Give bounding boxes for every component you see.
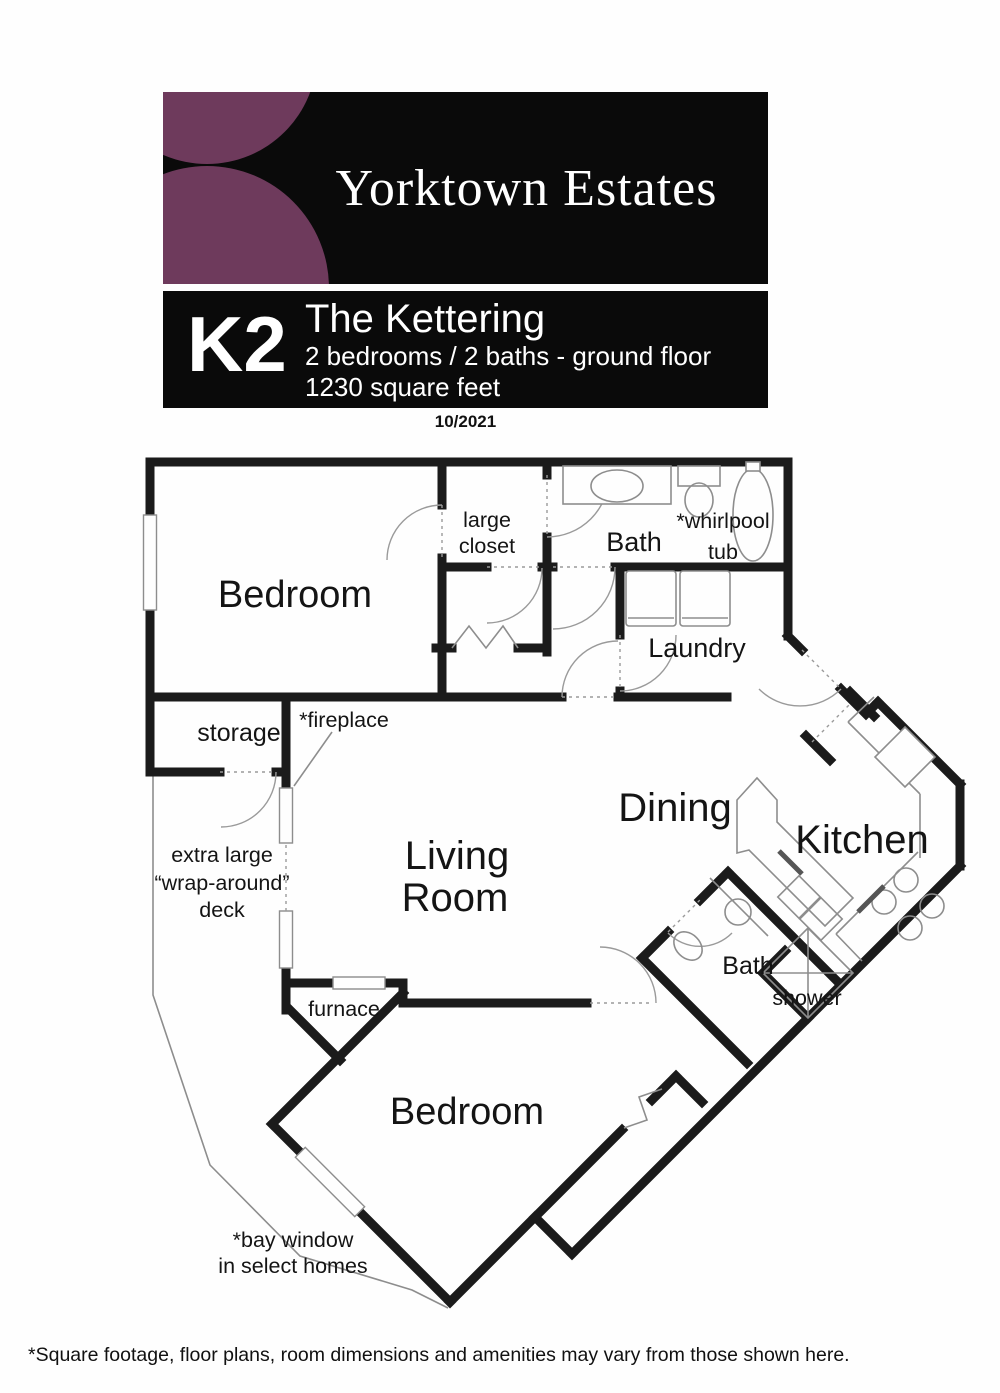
label-storage: storage	[197, 719, 280, 747]
label-bath2: Bath	[722, 952, 773, 980]
label-deck-3: deck	[199, 898, 245, 922]
label-large-closet-1: large	[463, 508, 511, 532]
label-kitchen: Kitchen	[795, 818, 928, 862]
sink	[725, 899, 751, 925]
refrigerator	[875, 727, 935, 787]
door-arcs	[221, 475, 841, 1003]
label-living-1: Living	[405, 834, 510, 878]
label-deck-2: “wrap-around”	[154, 871, 289, 895]
label-bath1: Bath	[606, 527, 662, 557]
laundry-appliances	[626, 571, 730, 626]
furnace-door	[333, 977, 385, 989]
label-whirlpool-2: tub	[708, 540, 738, 564]
living-window	[280, 911, 293, 968]
label-furnace: furnace	[308, 997, 380, 1021]
disclaimer-text: *Square footage, floor plans, room dimen…	[28, 1344, 988, 1367]
label-laundry: Laundry	[648, 633, 746, 663]
label-bay-1: *bay window	[233, 1228, 354, 1252]
label-bay-2: in select homes	[218, 1254, 367, 1278]
burner	[894, 868, 918, 892]
label-fireplace: *fireplace	[299, 708, 389, 732]
label-shower: shower	[772, 986, 841, 1010]
floorplan-drawing: Bedroom large closet Bath *whirlpool tub…	[0, 0, 1000, 1393]
label-whirlpool-1: *whirlpool	[676, 509, 769, 533]
label-deck-1: extra large	[171, 843, 273, 867]
fireplace-insert	[280, 788, 293, 843]
label-living-2: Room	[402, 876, 509, 920]
bay-window	[295, 1147, 364, 1216]
vanity-counter	[563, 466, 671, 504]
tub-faucet	[746, 462, 760, 471]
floorplan-page: Yorktown Estates K2 The Kettering 2 bedr…	[0, 0, 1000, 1393]
oven-front	[858, 886, 884, 912]
bedroom1-window	[144, 515, 157, 610]
label-bedroom2: Bedroom	[390, 1091, 544, 1133]
fireplace-leader	[294, 732, 332, 786]
label-dining: Dining	[618, 786, 731, 830]
label-large-closet-2: closet	[459, 534, 515, 558]
label-bedroom1: Bedroom	[218, 574, 372, 616]
